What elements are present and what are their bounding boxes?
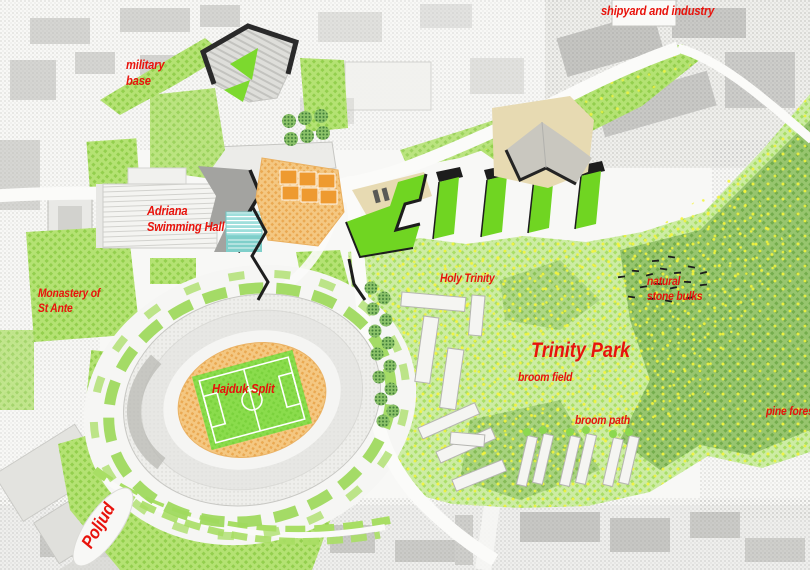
label-monastery-st-ante: Monastery of St Ante [38,286,100,315]
label-shipyard-industry: shipyard and industry [601,3,714,19]
label-hajduk-split: Hajduk Split [212,381,275,397]
label-military-base: military base [126,57,164,89]
label-pine-forest: pine forest [766,404,810,419]
label-adriana-swimming-hall: Adriana Swimming Hall [147,203,224,235]
northeast-building [492,96,594,188]
label-natural-stone-bulks: natural stone bulks [647,274,702,303]
label-broom-field: broom field [518,370,572,385]
label-holy-trinity: Holy Trinity [440,271,495,286]
label-trinity-park: Trinity Park [531,338,630,364]
site-plan-map: shipyard and industry military base Adri… [0,0,810,570]
label-broom-path: broom path [575,413,630,428]
